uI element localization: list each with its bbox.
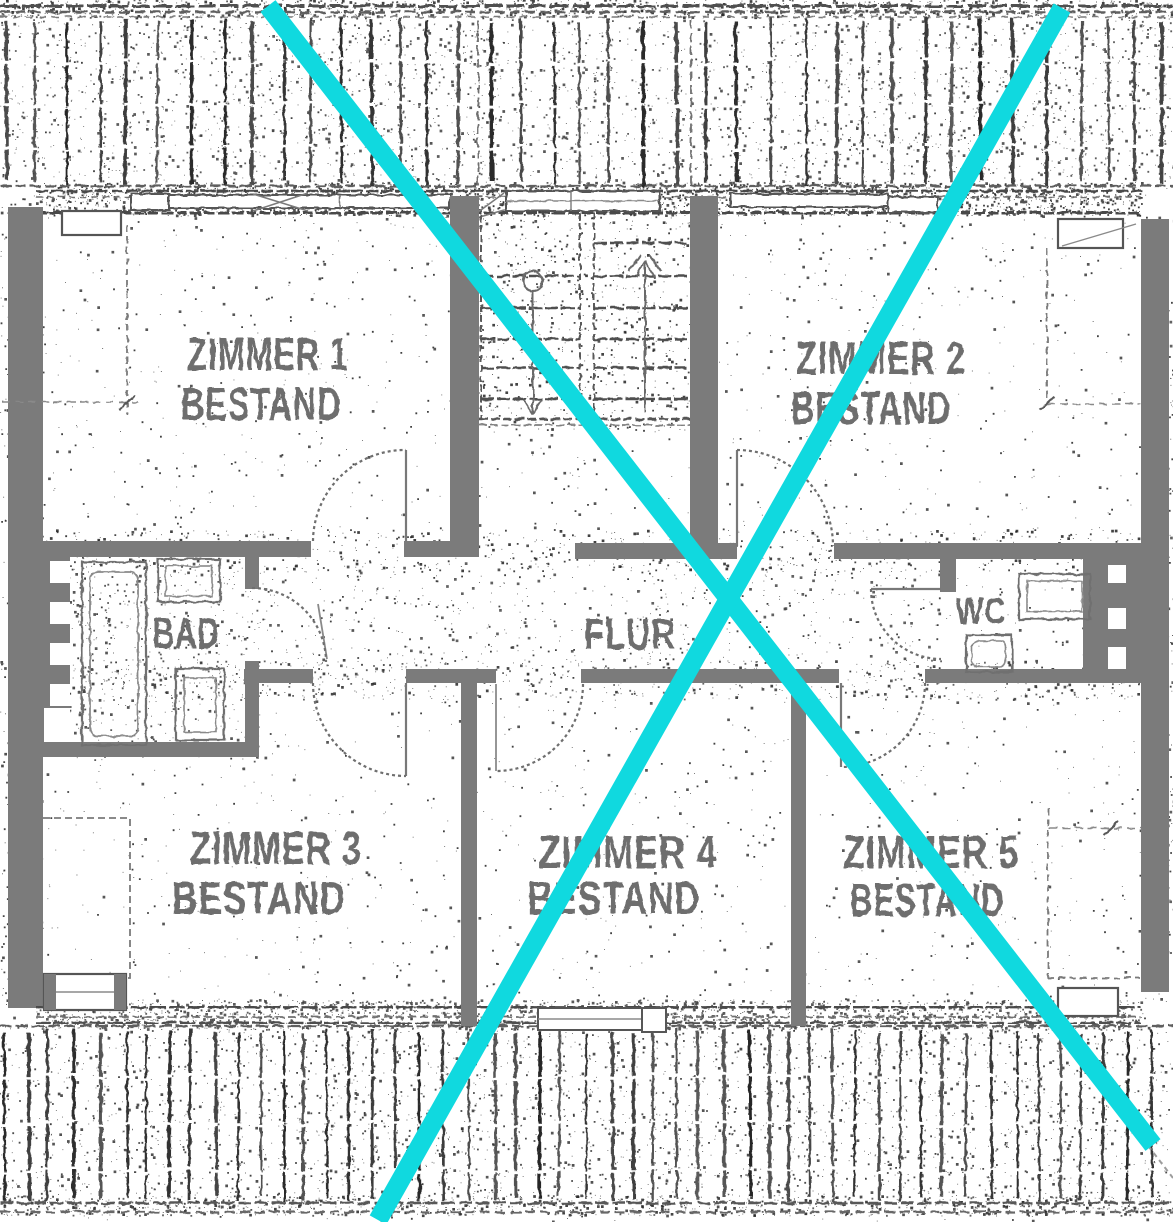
svg-text:WC: WC — [956, 591, 1007, 633]
svg-text:BESTAND: BESTAND — [181, 378, 342, 430]
svg-text:FLUR: FLUR — [584, 610, 676, 659]
svg-text:ZIMMER 1: ZIMMER 1 — [188, 328, 349, 380]
svg-text:BESTAND: BESTAND — [791, 382, 951, 434]
svg-text:BAD: BAD — [153, 609, 220, 658]
svg-text:BESTAND: BESTAND — [172, 872, 346, 924]
svg-text:ZIMMER 3: ZIMMER 3 — [190, 822, 362, 874]
